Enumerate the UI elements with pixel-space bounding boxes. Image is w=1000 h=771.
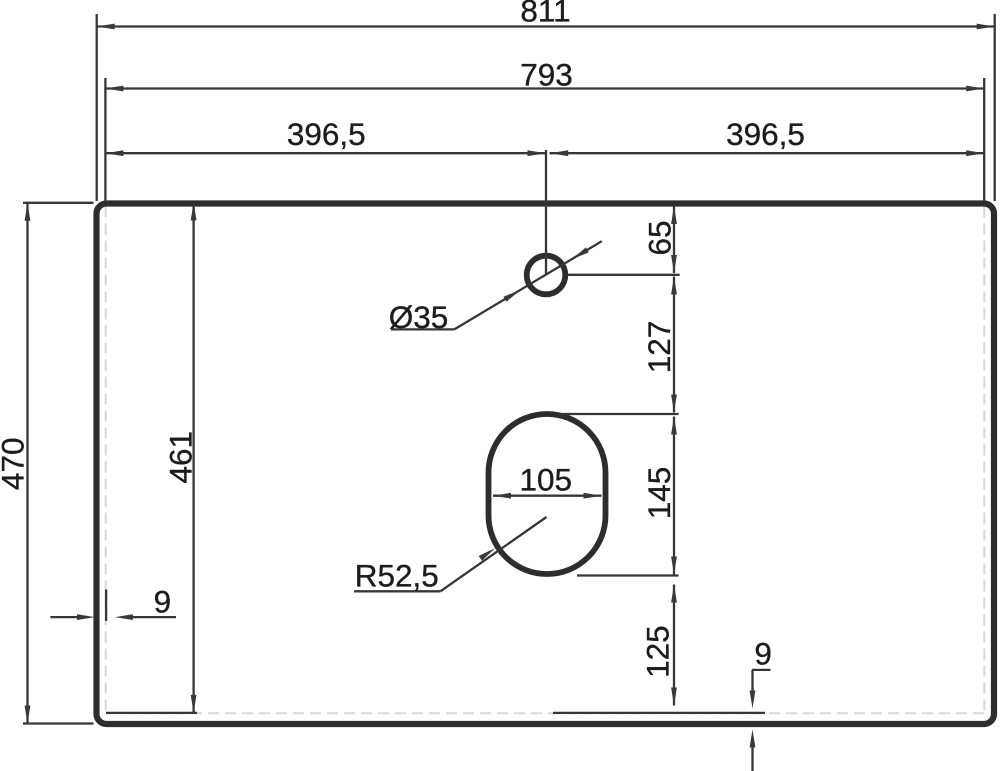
svg-text:396,5: 396,5 xyxy=(287,116,366,152)
svg-text:105: 105 xyxy=(520,461,573,497)
svg-text:Ø35: Ø35 xyxy=(389,299,449,335)
svg-text:127: 127 xyxy=(641,321,677,374)
svg-text:R52,5: R52,5 xyxy=(355,558,439,594)
svg-text:145: 145 xyxy=(641,467,677,520)
svg-text:396,5: 396,5 xyxy=(726,116,805,152)
svg-text:65: 65 xyxy=(642,220,678,255)
svg-text:9: 9 xyxy=(754,636,772,672)
svg-text:125: 125 xyxy=(640,625,676,678)
svg-text:9: 9 xyxy=(154,584,172,620)
svg-text:793: 793 xyxy=(520,57,573,93)
svg-text:470: 470 xyxy=(0,438,31,491)
svg-text:461: 461 xyxy=(163,431,199,484)
svg-text:811: 811 xyxy=(520,0,570,29)
